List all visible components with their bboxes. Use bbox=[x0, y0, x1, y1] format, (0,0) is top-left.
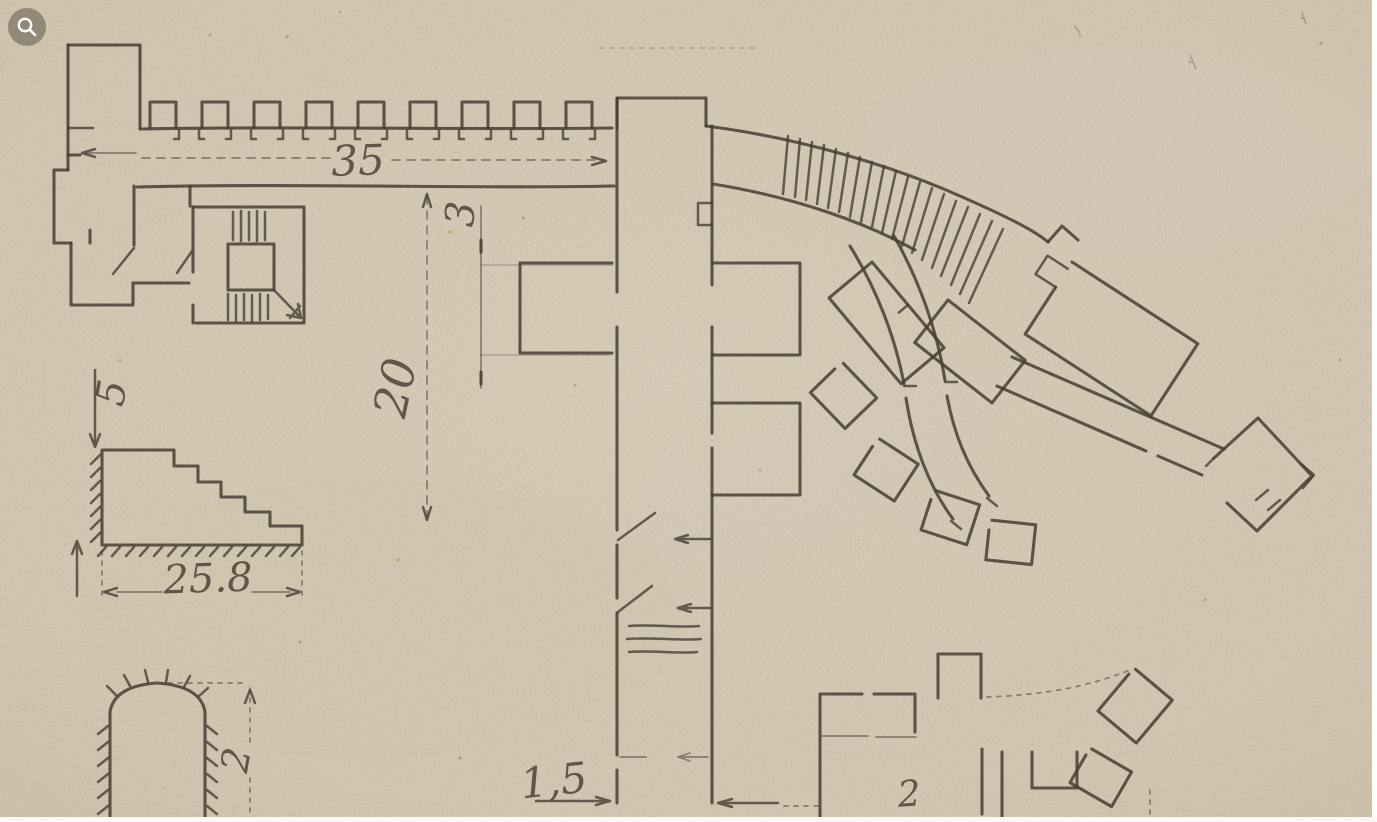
zoom-button[interactable] bbox=[8, 8, 46, 46]
gallery-wall-line bbox=[137, 186, 614, 187]
magnifier-icon bbox=[16, 16, 38, 38]
scan-edge-right bbox=[1372, 0, 1377, 822]
scan-edge-bottom bbox=[0, 817, 1377, 822]
block-2-label: 2 bbox=[895, 773, 922, 816]
dimension-3-label: 3 bbox=[437, 199, 485, 228]
dimension-25-8-label: 25.8 bbox=[162, 554, 254, 603]
dimension-35-label: 35 bbox=[330, 135, 385, 186]
scanned-plan-page: 35 20 3 bbox=[0, 0, 1377, 822]
dimension-1-5-label: 1,5 bbox=[518, 753, 590, 809]
fortress-plan-drawing: 35 20 3 bbox=[0, 0, 1377, 822]
